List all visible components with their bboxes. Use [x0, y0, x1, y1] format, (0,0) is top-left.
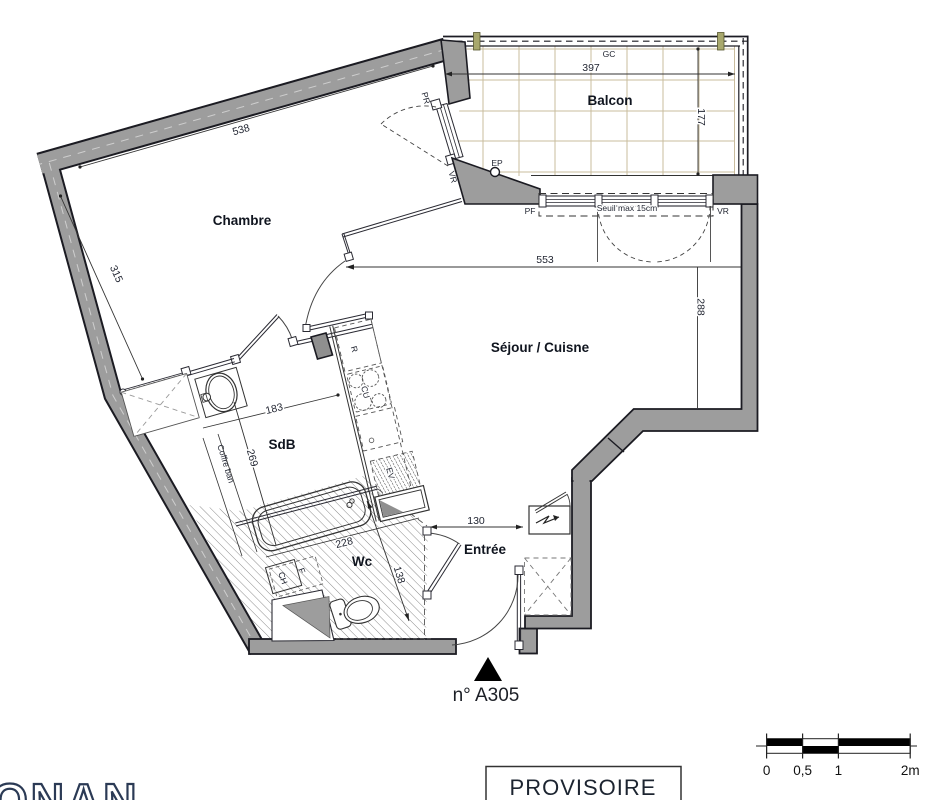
svg-text:n° A305: n° A305 — [453, 685, 520, 706]
svg-text:0,5: 0,5 — [793, 763, 812, 778]
svg-text:0: 0 — [763, 763, 771, 778]
svg-text:Entrée: Entrée — [464, 542, 507, 557]
svg-text:Chambre: Chambre — [213, 213, 272, 228]
svg-text:553: 553 — [536, 254, 554, 266]
svg-text:GC: GC — [603, 49, 616, 59]
svg-text:Séjour / Cuisne: Séjour / Cuisne — [491, 340, 590, 355]
svg-text:Balcon: Balcon — [587, 93, 632, 108]
svg-text:288: 288 — [695, 298, 707, 316]
svg-text:1: 1 — [835, 763, 843, 778]
svg-text:EP: EP — [491, 158, 503, 168]
svg-text:PROVISOIRE: PROVISOIRE — [510, 775, 657, 800]
svg-text:ONAN: ONAN — [0, 774, 139, 800]
svg-text:177: 177 — [695, 108, 707, 126]
svg-text:SdB: SdB — [269, 437, 296, 452]
svg-text:Wc: Wc — [352, 554, 373, 569]
svg-text:2m: 2m — [901, 763, 920, 778]
svg-text:VR: VR — [717, 206, 729, 216]
svg-text:PF: PF — [525, 206, 536, 216]
svg-text:397: 397 — [582, 62, 600, 74]
svg-text:Seuil max 15cm: Seuil max 15cm — [597, 203, 657, 213]
svg-text:130: 130 — [467, 515, 485, 527]
